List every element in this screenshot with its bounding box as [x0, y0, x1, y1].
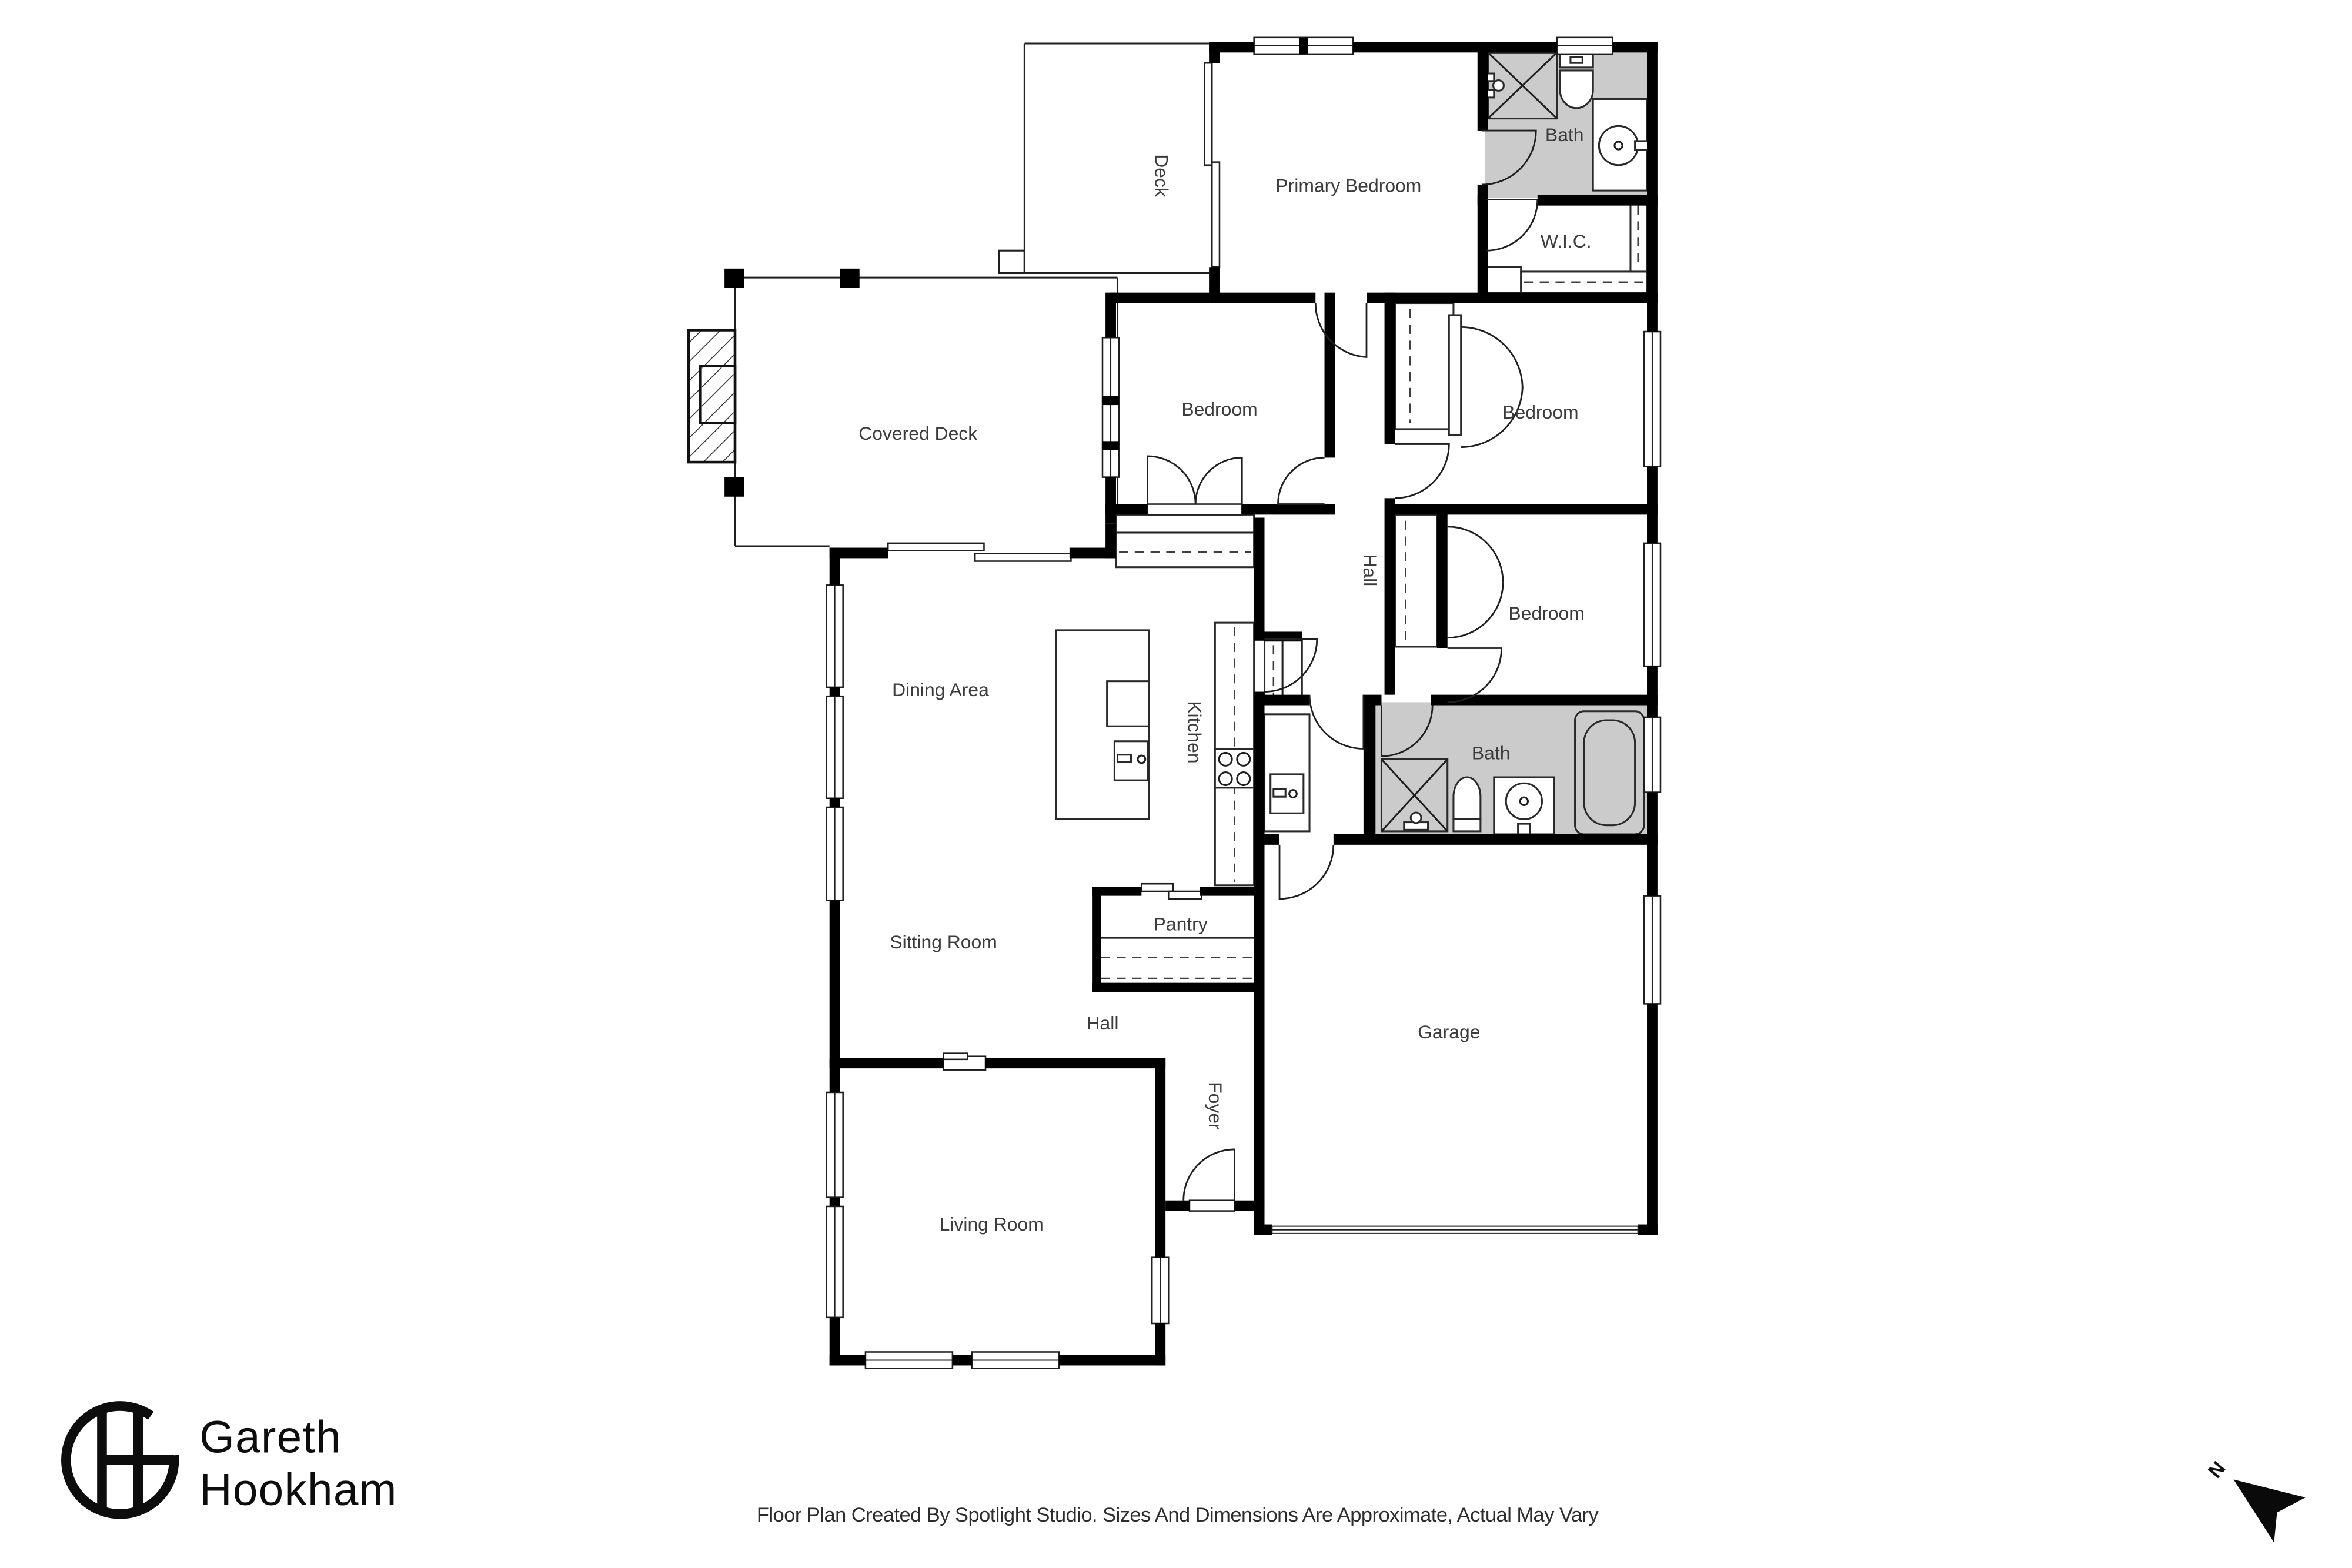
- closet-bifold: [1448, 582, 1503, 637]
- bedroom-closet: [1395, 514, 1436, 647]
- hall-closet: [1116, 514, 1254, 567]
- room-label-bedroom-lower-right: Bedroom: [1508, 603, 1584, 624]
- sink-icon: [1599, 126, 1638, 165]
- room-label-pantry: Pantry: [1154, 913, 1208, 934]
- room-label-deck: Deck: [1151, 154, 1172, 197]
- bathtub-inner: [1584, 720, 1635, 825]
- door-wic: [1486, 199, 1538, 250]
- brand-logo: Gareth Hookham: [66, 1406, 397, 1514]
- closet-bifold: [1461, 327, 1523, 389]
- toilet-bowl-icon: [1454, 777, 1481, 819]
- north-arrow-icon: [2233, 1479, 2305, 1542]
- sliding-door: [1212, 162, 1220, 268]
- door-garage: [1279, 845, 1334, 899]
- room-label-foyer: Foyer: [1205, 1082, 1226, 1130]
- front-door-sill: [1190, 1201, 1235, 1211]
- north-label: N: [2204, 1457, 2230, 1482]
- toilet-tank: [1454, 819, 1481, 831]
- covered-deck-outline: [689, 269, 1118, 546]
- island-faucet: [1118, 755, 1131, 763]
- sliding-door: [1168, 891, 1201, 899]
- sliding-door: [888, 543, 984, 551]
- sliding-door: [1204, 63, 1212, 165]
- brand-name-line2: Hookham: [199, 1465, 397, 1515]
- closets: [1101, 203, 1647, 978]
- island-cooktop: [1107, 681, 1149, 727]
- door-primary-bedroom: [1315, 303, 1367, 357]
- deck-outline: [999, 44, 1209, 273]
- room-label-bedroom-middle: Bedroom: [1181, 399, 1257, 420]
- room-label-wic: W.I.C.: [1541, 230, 1592, 252]
- room-label-bath-upper: Bath: [1545, 124, 1584, 145]
- north-arrow: N: [2204, 1457, 2306, 1543]
- room-label-hall-lower: Hall: [1087, 1012, 1119, 1034]
- room-label-living-room: Living Room: [940, 1213, 1044, 1235]
- toilet-bowl-icon: [1560, 71, 1593, 108]
- door-laundry-hall: [1309, 695, 1364, 749]
- room-label-garage: Garage: [1418, 1021, 1480, 1042]
- laundry-faucet: [1274, 789, 1285, 797]
- closet-door-right: [1195, 457, 1242, 504]
- shower-head-icon: [1411, 813, 1421, 823]
- toilet-button: [1571, 57, 1582, 63]
- gh-monogram-icon: [66, 1406, 174, 1514]
- faucet-icon: [1635, 141, 1649, 150]
- bedroom-closet: [1395, 303, 1453, 429]
- closet-front: [1449, 315, 1461, 435]
- faucet-icon: [1518, 824, 1530, 834]
- shower-head-icon: [1494, 81, 1504, 91]
- deck-post: [724, 269, 744, 288]
- cased-opening-panel: [944, 1054, 968, 1059]
- door-bedroom-upper-right: [1395, 444, 1449, 498]
- sliding-door: [975, 554, 1071, 561]
- room-label-bedroom-upper-right: Bedroom: [1502, 402, 1578, 423]
- closet-bifold: [1448, 527, 1503, 582]
- closet-door-sill: [1148, 504, 1242, 515]
- deck-post: [840, 269, 860, 288]
- deck-stairs-landing-hatch: [702, 367, 734, 422]
- sliding-door: [1141, 884, 1173, 891]
- room-label-primary-bedroom: Primary Bedroom: [1275, 175, 1421, 196]
- door-bedroom-lower-right: [1448, 648, 1502, 703]
- room-label-dining-area: Dining Area: [892, 679, 989, 700]
- deck-post: [724, 477, 744, 497]
- room-label-kitchen: Kitchen: [1184, 701, 1205, 763]
- brand-name-line1: Gareth: [199, 1412, 342, 1462]
- floor-plan-page: Deck Primary Bedroom Bath W.I.C. Covered…: [0, 0, 2352, 1568]
- door-front-entry: [1184, 1149, 1235, 1201]
- footer-disclaimer: Floor Plan Created By Spotlight Studio. …: [757, 1504, 1599, 1526]
- garage-door: [1272, 1226, 1638, 1233]
- sink-icon: [1506, 783, 1542, 819]
- room-label-sitting-room: Sitting Room: [890, 931, 997, 952]
- room-label-covered-deck: Covered Deck: [858, 423, 977, 444]
- closet-door-left: [1148, 456, 1196, 504]
- floor-plan-canvas: Deck Primary Bedroom Bath W.I.C. Covered…: [0, 0, 2352, 1568]
- door-bedroom-middle: [1278, 457, 1324, 504]
- room-label-hall-upper: Hall: [1359, 554, 1381, 586]
- room-label-bath-lower: Bath: [1472, 742, 1511, 763]
